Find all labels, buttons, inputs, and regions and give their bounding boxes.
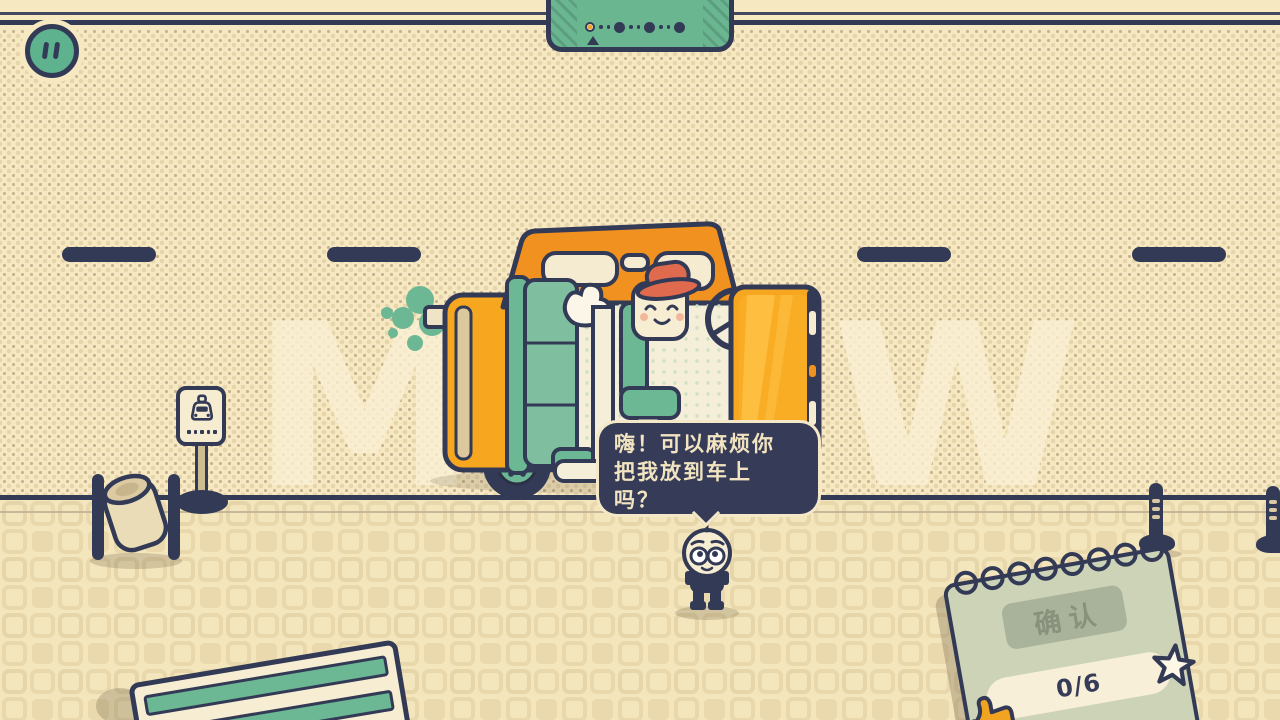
notepad-panel[interactable]: 确认 0/6 [942, 545, 1205, 720]
lane-dash [1132, 247, 1226, 262]
game-scene: M W [0, 0, 1280, 720]
route-stop [674, 22, 685, 33]
bollard-base [1256, 535, 1280, 553]
pause-icon [42, 42, 49, 60]
spiral-coil [953, 570, 979, 596]
route-stop [614, 22, 625, 33]
spiral-coil [1060, 551, 1086, 577]
spiral-coil [1006, 561, 1032, 587]
road-watermark-right: W [832, 318, 1081, 498]
plaque-hatch [703, 0, 729, 47]
waiting-passenger[interactable] [655, 523, 761, 623]
lane-dash [857, 247, 951, 262]
taxi-sign-icon [186, 393, 218, 427]
route-progress-plaque [546, 0, 734, 52]
star-icon [1143, 634, 1203, 694]
pause-icon [53, 42, 60, 60]
confirm-button[interactable]: 确认 [1000, 584, 1128, 650]
plaque-hatch [551, 0, 577, 47]
bollard [1266, 486, 1280, 542]
pause-button[interactable] [25, 24, 79, 78]
route-progress-track [585, 20, 705, 34]
passenger-counter-value: 0/6 [1054, 668, 1103, 703]
route-stop [644, 22, 655, 33]
van-rear-door-strip [456, 307, 471, 459]
speech-bubble-text: 嗨！可以麻烦你 把我放到车上 吗？ [614, 431, 775, 515]
spiral-coil [1113, 542, 1139, 568]
spiral-coil [980, 565, 1006, 591]
taxi-stop-sign [176, 386, 226, 446]
route-position-marker [587, 36, 599, 45]
taxi-sign-dots [187, 430, 217, 434]
speech-bubble: 嗨！可以麻烦你 把我放到车上 吗？ [599, 423, 818, 514]
spiral-coil [1033, 556, 1059, 582]
spiral-coil [1139, 537, 1165, 563]
thumbs-up-icon [953, 682, 1025, 720]
van-window-vent [622, 255, 648, 270]
lane-dash [62, 247, 156, 262]
trash-can[interactable] [80, 462, 192, 570]
route-stop-current [585, 22, 595, 32]
spiral-coil [1086, 547, 1112, 573]
